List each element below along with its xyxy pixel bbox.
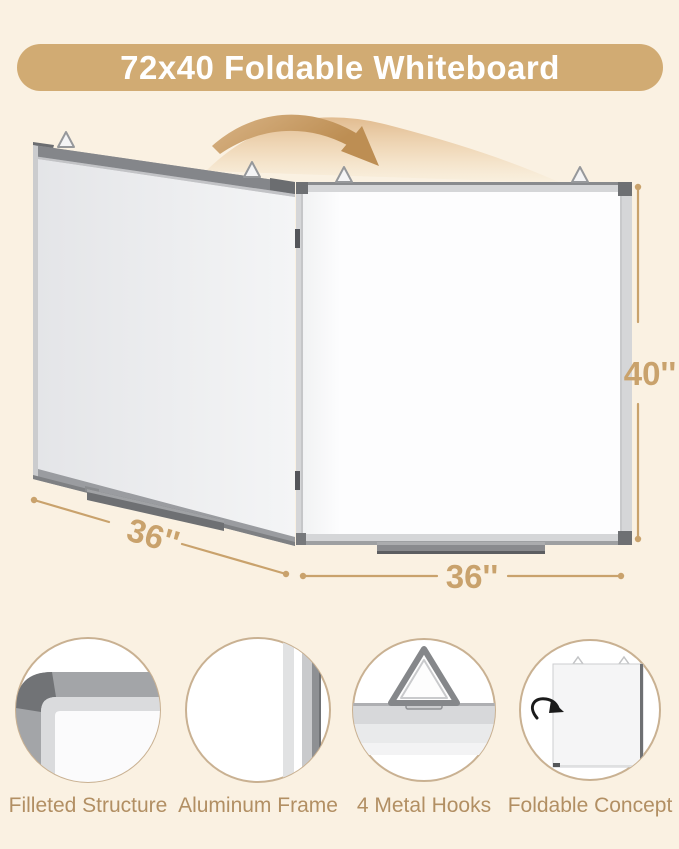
rounded-corner-icon	[16, 672, 165, 786]
left-panel	[33, 142, 295, 546]
right-marker-tray	[377, 542, 545, 554]
product-infographic: 72x40 Foldable Whiteboard	[0, 0, 679, 849]
feature-filleted-structure: Filleted Structure	[9, 638, 168, 817]
feature-aluminum-frame: Aluminum Frame	[178, 638, 338, 817]
feature-foldable-concept: Foldable Concept	[508, 640, 673, 817]
aluminum-frame-profile-icon	[283, 638, 321, 782]
hinge-mark	[295, 229, 300, 248]
feature-label: Foldable Concept	[508, 794, 673, 817]
feature-label: Aluminum Frame	[178, 794, 338, 817]
feature-metal-hooks: 4 Metal Hooks	[350, 639, 498, 817]
dimension-label-height: 40''	[624, 355, 676, 392]
right-panel	[295, 182, 632, 554]
hook-icon	[58, 132, 74, 147]
hinge-mark	[295, 471, 300, 490]
feature-label: Filleted Structure	[9, 794, 168, 817]
hook-icon	[572, 167, 588, 182]
dimension-label-right-width: 36''	[446, 558, 498, 595]
whiteboard-illustration: 40'' 36'' 36'' Filleted Struct	[0, 0, 679, 849]
feature-label: 4 Metal Hooks	[357, 794, 491, 817]
